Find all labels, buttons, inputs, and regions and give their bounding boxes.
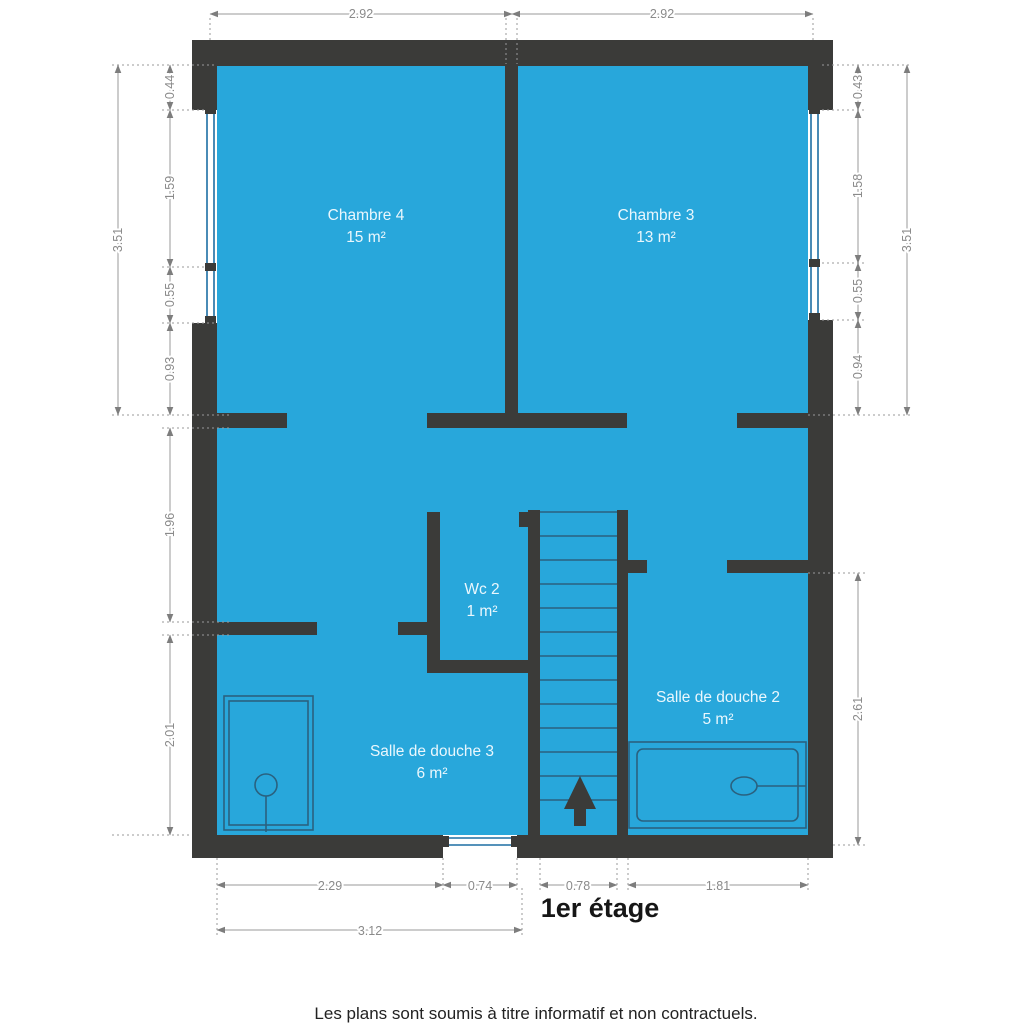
- dim-label: 1.96: [163, 513, 177, 537]
- wall-segment: [808, 40, 833, 110]
- dim-label: 0.94: [851, 355, 865, 379]
- wall-segment: [519, 512, 528, 527]
- window-post: [809, 107, 820, 114]
- room-area-wc-2: 1 m²: [467, 603, 498, 620]
- dim-label: 1.59: [163, 176, 177, 200]
- dim-label: 1.81: [706, 879, 730, 893]
- dim-label: 3.51: [111, 228, 125, 252]
- wall-segment: [427, 512, 440, 673]
- wall-segment: [727, 560, 808, 573]
- dim-label: 0.43: [851, 75, 865, 99]
- room-label-salle-de-douche-3: Salle de douche 3: [370, 743, 494, 760]
- room-label-chambre-3: Chambre 3: [618, 207, 695, 224]
- window-post: [205, 316, 216, 323]
- disclaimer-text: Les plans sont soumis à titre informatif…: [314, 1004, 757, 1023]
- window-post: [511, 836, 517, 847]
- wall-segment: [192, 40, 217, 110]
- window-right: [808, 107, 833, 320]
- room-area-chambre-4: 15 m²: [346, 229, 386, 246]
- dim-label: 0.78: [566, 879, 590, 893]
- room-area-salle-de-douche-2: 5 m²: [703, 711, 734, 728]
- window-post: [205, 263, 216, 271]
- window-left: [192, 107, 217, 323]
- dim-label: 0.55: [163, 283, 177, 307]
- floor-title: 1er étage: [541, 893, 660, 923]
- dim-label: 3.51: [900, 228, 914, 252]
- dim-label: 2.29: [318, 879, 342, 893]
- dim-label: 2.61: [851, 697, 865, 721]
- room-label-salle-de-douche-2: Salle de douche 2: [656, 689, 780, 706]
- wall-segment: [628, 560, 647, 573]
- dim-label: 0.93: [163, 357, 177, 381]
- dim-label: 0.44: [163, 75, 177, 99]
- floor-plan: [192, 40, 833, 858]
- wall-segment: [192, 835, 443, 858]
- floor-plan-canvas: 2.92 2.92 3.51 0.44 1.59 0.55 0.93 1.96 …: [0, 0, 1024, 1024]
- wall-segment: [808, 320, 833, 858]
- wall-segment: [192, 323, 217, 858]
- floor-plan-page: 2.92 2.92 3.51 0.44 1.59 0.55 0.93 1.96 …: [0, 0, 1024, 1024]
- wall-segment: [427, 660, 540, 673]
- room-area-salle-de-douche-3: 6 m²: [417, 765, 448, 782]
- wall-segment: [398, 622, 427, 635]
- window-bottom: [443, 835, 517, 858]
- wall-segment: [192, 40, 833, 66]
- dim-label: 2.92: [349, 7, 373, 21]
- wall-segment: [528, 510, 540, 858]
- wall-segment: [505, 65, 518, 415]
- room-label-wc-2: Wc 2: [464, 581, 499, 598]
- wall-segment: [517, 835, 833, 858]
- window-post: [443, 836, 449, 847]
- wall-segment: [217, 622, 317, 635]
- dim-label: 3.12: [358, 924, 382, 938]
- dim-label: 0.55: [851, 279, 865, 303]
- room-label-chambre-4: Chambre 4: [328, 207, 405, 224]
- window-post: [809, 259, 820, 267]
- room-area-chambre-3: 13 m²: [636, 229, 676, 246]
- window-post: [809, 313, 820, 320]
- dim-label: 1.58: [851, 174, 865, 198]
- dim-label: 2.92: [650, 7, 674, 21]
- dim-label: 2.01: [163, 723, 177, 747]
- dim-label: 0.74: [468, 879, 492, 893]
- wall-segment: [617, 510, 628, 858]
- window-post: [205, 107, 216, 114]
- wall-segment: [427, 413, 627, 428]
- wall-segment: [737, 413, 808, 428]
